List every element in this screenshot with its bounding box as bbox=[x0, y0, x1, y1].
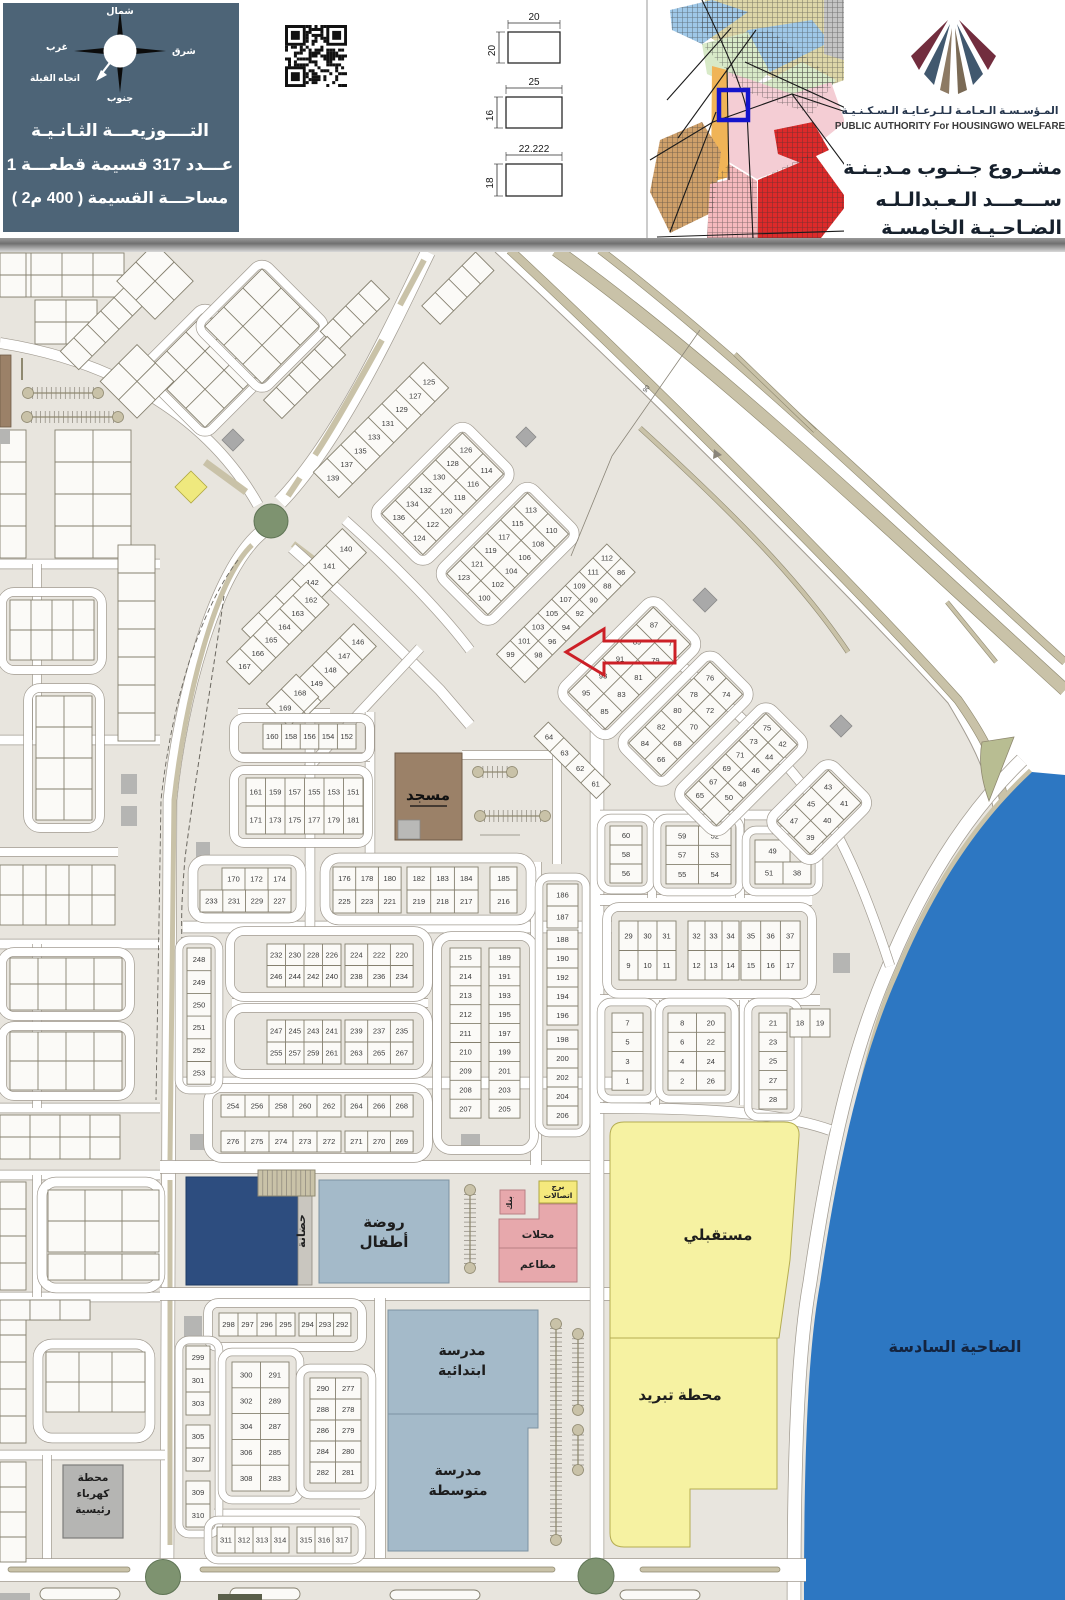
svg-text:157: 157 bbox=[289, 788, 302, 797]
svg-text:227: 227 bbox=[273, 897, 286, 906]
svg-text:غرب: غرب bbox=[46, 42, 68, 53]
svg-text:270: 270 bbox=[373, 1137, 386, 1146]
svg-text:202: 202 bbox=[556, 1073, 569, 1082]
svg-text:166: 166 bbox=[252, 649, 265, 658]
svg-text:126: 126 bbox=[460, 446, 473, 455]
svg-text:2: 2 bbox=[680, 1076, 684, 1085]
svg-text:238: 238 bbox=[350, 972, 363, 981]
svg-text:16: 16 bbox=[485, 110, 496, 122]
svg-text:كهرباء: كهرباء bbox=[77, 1488, 111, 1500]
svg-text:20: 20 bbox=[528, 12, 540, 23]
svg-text:214: 214 bbox=[459, 972, 472, 981]
svg-text:311: 311 bbox=[220, 1536, 232, 1545]
svg-text:194: 194 bbox=[556, 992, 569, 1001]
svg-text:283: 283 bbox=[269, 1474, 282, 1483]
svg-text:روضة: روضة bbox=[363, 1214, 405, 1231]
svg-text:40: 40 bbox=[823, 816, 831, 825]
svg-text:19: 19 bbox=[816, 1019, 824, 1028]
svg-text:278: 278 bbox=[342, 1405, 355, 1414]
svg-text:290: 290 bbox=[317, 1384, 330, 1393]
svg-text:259: 259 bbox=[307, 1049, 320, 1058]
svg-text:236: 236 bbox=[373, 972, 386, 981]
svg-text:201: 201 bbox=[498, 1067, 511, 1076]
svg-text:173: 173 bbox=[269, 816, 282, 825]
svg-text:277: 277 bbox=[342, 1384, 355, 1393]
svg-text:310: 310 bbox=[192, 1511, 205, 1520]
svg-text:156: 156 bbox=[303, 732, 316, 741]
svg-text:13: 13 bbox=[709, 961, 717, 970]
svg-text:299: 299 bbox=[192, 1353, 205, 1362]
svg-text:44: 44 bbox=[765, 753, 773, 762]
svg-text:298: 298 bbox=[222, 1320, 235, 1329]
svg-text:85: 85 bbox=[600, 707, 608, 716]
svg-text:266: 266 bbox=[373, 1102, 386, 1111]
svg-text:104: 104 bbox=[505, 567, 518, 576]
svg-text:300: 300 bbox=[240, 1371, 253, 1380]
svg-text:183: 183 bbox=[436, 874, 449, 883]
svg-text:47: 47 bbox=[790, 817, 798, 826]
svg-text:3: 3 bbox=[625, 1057, 629, 1066]
svg-text:307: 307 bbox=[192, 1455, 205, 1464]
svg-text:198: 198 bbox=[556, 1035, 569, 1044]
svg-text:230: 230 bbox=[289, 951, 302, 960]
svg-text:56: 56 bbox=[622, 869, 630, 878]
svg-text:178: 178 bbox=[361, 874, 374, 883]
svg-text:302: 302 bbox=[240, 1396, 253, 1405]
svg-text:306: 306 bbox=[240, 1448, 253, 1457]
svg-text:205: 205 bbox=[498, 1104, 511, 1113]
svg-text:172: 172 bbox=[250, 875, 263, 884]
svg-text:184: 184 bbox=[460, 874, 473, 883]
svg-text:316: 316 bbox=[318, 1536, 331, 1545]
svg-text:مدرسة: مدرسة bbox=[434, 1462, 481, 1478]
svg-text:53: 53 bbox=[711, 851, 719, 860]
svg-text:170: 170 bbox=[227, 875, 240, 884]
svg-text:88: 88 bbox=[603, 582, 611, 591]
svg-text:105: 105 bbox=[546, 609, 559, 618]
svg-text:برج: برج bbox=[552, 1182, 565, 1191]
svg-text:131: 131 bbox=[382, 419, 395, 428]
svg-text:16: 16 bbox=[766, 961, 774, 970]
svg-text:148: 148 bbox=[324, 665, 337, 674]
svg-text:222: 222 bbox=[373, 951, 386, 960]
svg-text:محلات: محلات bbox=[522, 1229, 555, 1241]
svg-text:190: 190 bbox=[556, 954, 569, 963]
svg-text:269: 269 bbox=[396, 1137, 409, 1146]
svg-text:256: 256 bbox=[251, 1102, 264, 1111]
svg-text:313: 313 bbox=[256, 1536, 269, 1545]
svg-text:152: 152 bbox=[340, 732, 353, 741]
svg-text:179: 179 bbox=[328, 816, 341, 825]
svg-text:بنك: بنك bbox=[505, 1196, 514, 1210]
svg-text:264: 264 bbox=[350, 1102, 363, 1111]
svg-text:96: 96 bbox=[548, 637, 556, 646]
svg-text:154: 154 bbox=[322, 732, 335, 741]
svg-text:304: 304 bbox=[240, 1422, 253, 1431]
svg-text:مشـروع جـنـوب مـديـنـة: مشـروع جـنـوب مـديـنـة bbox=[843, 158, 1062, 179]
svg-text:38: 38 bbox=[793, 869, 801, 878]
svg-text:رئيسية: رئيسية bbox=[75, 1504, 111, 1516]
svg-text:73: 73 bbox=[749, 737, 757, 746]
svg-text:147: 147 bbox=[338, 651, 351, 660]
svg-text:297: 297 bbox=[241, 1320, 254, 1329]
svg-text:33: 33 bbox=[709, 932, 717, 941]
svg-text:22.222: 22.222 bbox=[519, 144, 550, 155]
svg-text:129: 129 bbox=[395, 405, 408, 414]
svg-text:217: 217 bbox=[460, 897, 473, 906]
svg-text:8: 8 bbox=[680, 1018, 684, 1027]
svg-text:180: 180 bbox=[384, 874, 397, 883]
svg-text:133: 133 bbox=[368, 433, 381, 442]
svg-text:35: 35 bbox=[747, 932, 755, 941]
svg-text:92: 92 bbox=[576, 609, 584, 618]
svg-text:289: 289 bbox=[269, 1396, 282, 1405]
svg-text:ســـعـــد الـعـبدالـلـه: ســـعـــد الـعـبدالـلـه bbox=[875, 190, 1062, 211]
svg-text:15: 15 bbox=[747, 961, 755, 970]
svg-text:التــــوزيعـــة الثـانـيـة: التــــوزيعـــة الثـانـيـة bbox=[31, 121, 209, 141]
svg-text:55: 55 bbox=[678, 870, 686, 879]
svg-text:95: 95 bbox=[582, 689, 590, 698]
svg-text:291: 291 bbox=[269, 1371, 282, 1380]
svg-text:317: 317 bbox=[336, 1536, 349, 1545]
svg-text:83: 83 bbox=[617, 690, 625, 699]
svg-text:76: 76 bbox=[706, 674, 714, 683]
svg-text:10: 10 bbox=[643, 961, 651, 970]
svg-text:41: 41 bbox=[840, 799, 848, 808]
svg-text:225: 225 bbox=[338, 897, 351, 906]
svg-text:72: 72 bbox=[706, 706, 714, 715]
svg-text:135: 135 bbox=[354, 446, 367, 455]
svg-text:29: 29 bbox=[624, 932, 632, 941]
svg-text:261: 261 bbox=[326, 1049, 339, 1058]
svg-text:الضـاحـيـة الخامسـة: الضـاحـيـة الخامسـة bbox=[881, 218, 1062, 239]
svg-text:6: 6 bbox=[680, 1038, 684, 1047]
svg-text:162: 162 bbox=[305, 596, 318, 605]
svg-text:226: 226 bbox=[326, 951, 339, 960]
svg-text:42: 42 bbox=[778, 739, 786, 748]
svg-text:163: 163 bbox=[291, 609, 304, 618]
svg-text:252: 252 bbox=[193, 1046, 206, 1055]
svg-text:193: 193 bbox=[498, 991, 511, 1000]
svg-text:PUBLIC AUTHORITY For HOUSINGWO: PUBLIC AUTHORITY For HOUSINGWO WELFARE bbox=[835, 121, 1065, 132]
svg-text:46: 46 bbox=[752, 766, 760, 775]
svg-text:123: 123 bbox=[458, 573, 471, 582]
svg-text:18: 18 bbox=[485, 177, 496, 189]
svg-text:149: 149 bbox=[310, 679, 323, 688]
svg-text:276: 276 bbox=[227, 1137, 240, 1146]
svg-text:عـــدد 317 قسيمة قطعـــة 1: عـــدد 317 قسيمة قطعـــة 1 bbox=[7, 155, 233, 174]
svg-text:286: 286 bbox=[317, 1426, 330, 1435]
svg-text:171: 171 bbox=[250, 816, 263, 825]
svg-text:223: 223 bbox=[361, 897, 374, 906]
svg-text:161: 161 bbox=[250, 788, 263, 797]
svg-text:260: 260 bbox=[299, 1102, 312, 1111]
svg-text:253: 253 bbox=[193, 1069, 206, 1078]
svg-text:248: 248 bbox=[193, 955, 206, 964]
svg-text:28: 28 bbox=[769, 1095, 777, 1104]
svg-text:208: 208 bbox=[459, 1086, 472, 1095]
svg-text:189: 189 bbox=[498, 953, 511, 962]
svg-text:مطاعم: مطاعم bbox=[520, 1259, 556, 1271]
svg-text:287: 287 bbox=[269, 1422, 282, 1431]
svg-text:68: 68 bbox=[673, 739, 681, 748]
svg-text:219: 219 bbox=[413, 897, 426, 906]
svg-text:101: 101 bbox=[518, 636, 531, 645]
svg-text:137: 137 bbox=[340, 460, 353, 469]
svg-text:210: 210 bbox=[459, 1048, 472, 1057]
svg-text:11: 11 bbox=[663, 961, 671, 970]
svg-text:279: 279 bbox=[342, 1426, 355, 1435]
svg-text:37: 37 bbox=[786, 932, 794, 941]
svg-text:228: 228 bbox=[307, 951, 320, 960]
svg-text:160: 160 bbox=[266, 732, 279, 741]
svg-text:168: 168 bbox=[294, 689, 307, 698]
svg-text:139: 139 bbox=[327, 474, 340, 483]
svg-text:188: 188 bbox=[556, 935, 569, 944]
svg-text:250: 250 bbox=[193, 1001, 206, 1010]
svg-text:24: 24 bbox=[707, 1057, 715, 1066]
svg-text:شرق: شرق bbox=[172, 46, 196, 57]
svg-text:جنوب: جنوب bbox=[107, 93, 133, 104]
svg-text:130: 130 bbox=[433, 473, 446, 482]
svg-text:273: 273 bbox=[299, 1137, 312, 1146]
svg-text:12: 12 bbox=[692, 961, 700, 970]
svg-text:50: 50 bbox=[725, 793, 733, 802]
svg-text:247: 247 bbox=[270, 1027, 283, 1036]
svg-text:108: 108 bbox=[532, 540, 545, 549]
svg-text:294: 294 bbox=[301, 1320, 314, 1329]
svg-text:258: 258 bbox=[275, 1102, 288, 1111]
svg-text:60: 60 bbox=[622, 831, 630, 840]
svg-text:18: 18 bbox=[796, 1019, 804, 1028]
svg-text:295: 295 bbox=[279, 1320, 292, 1329]
svg-text:308: 308 bbox=[240, 1474, 253, 1483]
svg-text:125: 125 bbox=[423, 378, 436, 387]
svg-text:268: 268 bbox=[396, 1102, 409, 1111]
svg-text:239: 239 bbox=[350, 1027, 363, 1036]
svg-text:233: 233 bbox=[205, 897, 218, 906]
svg-text:مستقبلي: مستقبلي bbox=[684, 1227, 753, 1244]
svg-text:23: 23 bbox=[769, 1038, 777, 1047]
svg-text:20: 20 bbox=[707, 1018, 715, 1027]
svg-text:المـؤسـسـة الـعـامـة لـلـرعـاي: المـؤسـسـة الـعـامـة لـلـرعـايـة الـسـكـ… bbox=[842, 105, 1059, 117]
svg-text:57: 57 bbox=[678, 851, 686, 860]
svg-text:107: 107 bbox=[559, 595, 572, 604]
svg-text:81: 81 bbox=[634, 673, 642, 682]
svg-text:22: 22 bbox=[707, 1038, 715, 1047]
svg-text:191: 191 bbox=[498, 972, 511, 981]
svg-text:281: 281 bbox=[342, 1468, 355, 1477]
svg-text:67: 67 bbox=[709, 777, 717, 786]
svg-text:64: 64 bbox=[545, 733, 553, 742]
svg-text:211: 211 bbox=[460, 1029, 472, 1038]
svg-text:235: 235 bbox=[396, 1027, 409, 1036]
svg-text:309: 309 bbox=[192, 1488, 205, 1497]
svg-text:51: 51 bbox=[765, 869, 773, 878]
svg-text:254: 254 bbox=[227, 1102, 240, 1111]
svg-text:113: 113 bbox=[525, 506, 537, 515]
svg-text:114: 114 bbox=[481, 466, 493, 475]
svg-text:127: 127 bbox=[409, 391, 422, 400]
svg-text:مسجد: مسجد bbox=[406, 787, 450, 804]
svg-text:241: 241 bbox=[326, 1027, 339, 1036]
svg-text:31: 31 bbox=[662, 932, 670, 941]
svg-text:206: 206 bbox=[556, 1111, 569, 1120]
svg-text:الضاحية السادسة: الضاحية السادسة bbox=[889, 1339, 1022, 1356]
svg-text:207: 207 bbox=[459, 1104, 472, 1113]
svg-text:301: 301 bbox=[192, 1376, 205, 1385]
svg-text:70: 70 bbox=[690, 722, 698, 731]
svg-text:221: 221 bbox=[384, 897, 397, 906]
svg-text:167: 167 bbox=[238, 662, 251, 671]
svg-text:محطة: محطة bbox=[78, 1472, 109, 1484]
svg-text:94: 94 bbox=[562, 623, 570, 632]
svg-text:234: 234 bbox=[396, 972, 409, 981]
svg-text:293: 293 bbox=[319, 1320, 332, 1329]
svg-text:284: 284 bbox=[317, 1447, 330, 1456]
svg-text:195: 195 bbox=[498, 1010, 511, 1019]
svg-text:116: 116 bbox=[467, 480, 479, 489]
svg-text:5: 5 bbox=[625, 1038, 629, 1047]
svg-text:204: 204 bbox=[556, 1092, 569, 1101]
svg-text:62: 62 bbox=[576, 764, 584, 773]
svg-text:165: 165 bbox=[265, 636, 278, 645]
svg-text:69: 69 bbox=[723, 764, 731, 773]
svg-text:مساحـــة القسيمة ( 400 م2 ): مساحـــة القسيمة ( 400 م2 ) bbox=[12, 190, 228, 207]
svg-text:أطفال: أطفال bbox=[360, 1232, 409, 1251]
svg-text:216: 216 bbox=[497, 897, 510, 906]
svg-text:257: 257 bbox=[289, 1049, 302, 1058]
svg-text:315: 315 bbox=[300, 1536, 313, 1545]
svg-text:30: 30 bbox=[643, 932, 651, 941]
svg-text:232: 232 bbox=[270, 951, 283, 960]
svg-text:132: 132 bbox=[419, 486, 432, 495]
svg-text:231: 231 bbox=[228, 897, 241, 906]
svg-text:14: 14 bbox=[726, 961, 734, 970]
svg-text:90: 90 bbox=[589, 595, 597, 604]
svg-text:164: 164 bbox=[278, 622, 291, 631]
svg-text:271: 271 bbox=[350, 1137, 363, 1146]
svg-text:246: 246 bbox=[270, 972, 283, 981]
svg-text:128: 128 bbox=[446, 459, 459, 468]
svg-text:7: 7 bbox=[625, 1018, 629, 1027]
svg-text:106: 106 bbox=[518, 553, 531, 562]
svg-text:182: 182 bbox=[413, 874, 426, 883]
svg-text:111: 111 bbox=[588, 567, 599, 576]
svg-text:312: 312 bbox=[238, 1536, 251, 1545]
svg-text:158: 158 bbox=[285, 732, 298, 741]
svg-text:27: 27 bbox=[769, 1076, 777, 1085]
svg-text:103: 103 bbox=[532, 623, 545, 632]
svg-text:209: 209 bbox=[459, 1067, 472, 1076]
svg-text:20: 20 bbox=[487, 45, 498, 57]
svg-text:292: 292 bbox=[336, 1320, 349, 1329]
svg-text:124: 124 bbox=[413, 533, 426, 542]
svg-text:242: 242 bbox=[307, 972, 320, 981]
svg-text:120: 120 bbox=[440, 507, 453, 516]
svg-text:199: 199 bbox=[498, 1048, 511, 1057]
svg-text:169: 169 bbox=[279, 704, 292, 713]
svg-text:9: 9 bbox=[626, 961, 630, 970]
svg-text:272: 272 bbox=[323, 1137, 336, 1146]
svg-text:282: 282 bbox=[317, 1468, 330, 1477]
svg-text:محطة تبريد: محطة تبريد bbox=[638, 1387, 721, 1404]
svg-text:263: 263 bbox=[350, 1049, 363, 1058]
svg-text:78: 78 bbox=[690, 690, 698, 699]
svg-text:75: 75 bbox=[763, 724, 771, 733]
svg-text:21: 21 bbox=[769, 1018, 777, 1027]
svg-text:187: 187 bbox=[556, 913, 569, 922]
svg-text:58: 58 bbox=[622, 850, 630, 859]
svg-text:54: 54 bbox=[711, 870, 719, 879]
svg-text:25: 25 bbox=[769, 1057, 777, 1066]
svg-text:185: 185 bbox=[497, 874, 510, 883]
svg-text:153: 153 bbox=[328, 788, 341, 797]
svg-text:213: 213 bbox=[459, 991, 472, 1000]
svg-text:155: 155 bbox=[308, 788, 321, 797]
svg-text:متوسطة: متوسطة bbox=[428, 1482, 487, 1499]
svg-text:63: 63 bbox=[560, 748, 568, 757]
svg-text:109: 109 bbox=[573, 581, 586, 590]
svg-text:100: 100 bbox=[478, 593, 491, 602]
svg-text:110: 110 bbox=[546, 526, 558, 535]
svg-text:305: 305 bbox=[192, 1432, 205, 1441]
svg-text:285: 285 bbox=[269, 1448, 282, 1457]
svg-text:196: 196 bbox=[556, 1011, 569, 1020]
svg-text:176: 176 bbox=[338, 874, 351, 883]
svg-text:65: 65 bbox=[696, 791, 704, 800]
svg-text:314: 314 bbox=[274, 1536, 287, 1545]
svg-text:ابتدائية: ابتدائية bbox=[438, 1362, 486, 1378]
svg-text:87: 87 bbox=[650, 621, 658, 630]
svg-text:26: 26 bbox=[707, 1076, 715, 1085]
svg-text:17: 17 bbox=[786, 961, 794, 970]
svg-text:280: 280 bbox=[342, 1447, 355, 1456]
svg-text:249: 249 bbox=[193, 978, 206, 987]
svg-text:45: 45 bbox=[807, 800, 815, 809]
svg-text:251: 251 bbox=[193, 1023, 206, 1032]
svg-text:267: 267 bbox=[396, 1049, 409, 1058]
svg-text:159: 159 bbox=[269, 788, 282, 797]
svg-text:119: 119 bbox=[485, 546, 497, 555]
svg-text:115: 115 bbox=[512, 519, 524, 528]
svg-text:122: 122 bbox=[427, 520, 440, 529]
svg-text:80: 80 bbox=[673, 706, 681, 715]
svg-text:274: 274 bbox=[275, 1137, 288, 1146]
svg-text:48: 48 bbox=[738, 780, 746, 789]
svg-text:243: 243 bbox=[307, 1027, 320, 1036]
svg-text:حضانة: حضانة bbox=[296, 1214, 308, 1248]
svg-text:134: 134 bbox=[406, 499, 419, 508]
svg-text:43: 43 bbox=[824, 783, 832, 792]
svg-text:218: 218 bbox=[436, 897, 449, 906]
svg-text:288: 288 bbox=[317, 1405, 330, 1414]
svg-text:121: 121 bbox=[471, 559, 484, 568]
svg-text:255: 255 bbox=[270, 1049, 283, 1058]
svg-text:237: 237 bbox=[373, 1027, 386, 1036]
svg-text:275: 275 bbox=[251, 1137, 264, 1146]
svg-text:186: 186 bbox=[556, 891, 569, 900]
svg-text:174: 174 bbox=[273, 875, 286, 884]
svg-text:118: 118 bbox=[454, 493, 466, 502]
svg-text:4: 4 bbox=[680, 1057, 684, 1066]
svg-text:39: 39 bbox=[806, 833, 814, 842]
svg-text:مدرسة: مدرسة bbox=[438, 1342, 485, 1358]
svg-text:99: 99 bbox=[506, 650, 514, 659]
svg-text:102: 102 bbox=[492, 580, 505, 589]
svg-text:212: 212 bbox=[459, 1010, 472, 1019]
svg-text:203: 203 bbox=[498, 1086, 511, 1095]
